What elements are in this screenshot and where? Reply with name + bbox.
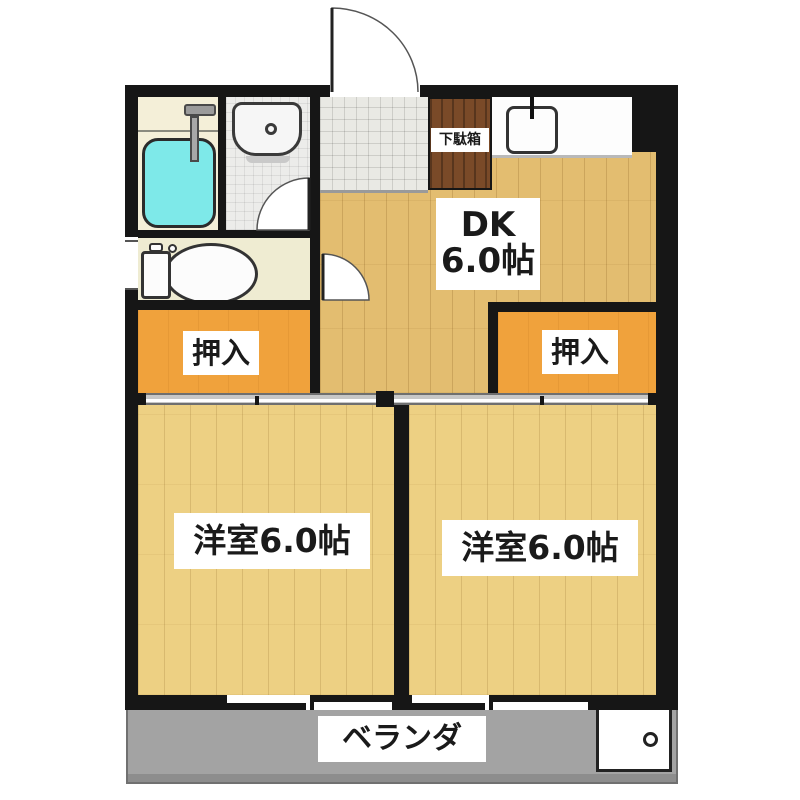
- sliding-band-center-post: [376, 391, 394, 407]
- window-right-tick: [489, 695, 493, 710]
- wall-closet-right-top: [488, 302, 656, 312]
- closet-right-label: 押入: [542, 330, 618, 374]
- wall-bath-washroom: [218, 97, 226, 230]
- window-left-tick: [310, 695, 314, 710]
- window-left-panel-a: [227, 695, 313, 703]
- sliding-band-cap-left: [138, 393, 146, 405]
- sliding-door-tick-left: [255, 396, 259, 405]
- window-right-panel-b: [485, 702, 588, 710]
- drain-circle: [643, 732, 658, 747]
- toilet-tank: [141, 251, 171, 299]
- toilet-flush-button: [168, 244, 177, 253]
- wall-bedroom-divider: [394, 405, 409, 710]
- dk-size: 6.0帖: [441, 244, 535, 280]
- bedroom-left-label: 洋室6.0帖: [174, 513, 370, 569]
- toilet-bowl: [164, 243, 258, 305]
- veranda-label: ベランダ: [318, 716, 486, 762]
- wall-left-lower: [125, 290, 138, 710]
- bathtub: [142, 138, 216, 228]
- sliding-door-track: [138, 399, 656, 402]
- wall-closet-right-side: [488, 302, 498, 393]
- wall-toilet-closet: [125, 300, 320, 310]
- closet-left-label: 押入: [183, 331, 259, 375]
- wall-right: [656, 85, 678, 710]
- wall-left-upper: [125, 85, 138, 237]
- sliding-doors-band: [138, 393, 656, 405]
- wall-bottom: [125, 695, 678, 710]
- shoe-cabinet-label: 下駄箱: [431, 128, 489, 152]
- window-right-panel-a: [412, 695, 492, 703]
- washbasin: [232, 102, 302, 156]
- toilet-cistern-knob: [149, 243, 163, 252]
- wall-spine: [310, 97, 320, 393]
- window-left-panel-b: [306, 702, 392, 710]
- entrance-door-arc: [328, 4, 424, 98]
- entrance-genkan-tiles: [320, 97, 428, 192]
- toilet-door-arc: [321, 252, 371, 302]
- bath-shelf-line: [138, 130, 218, 132]
- toilet-window: [125, 240, 138, 290]
- bath-faucet-head: [184, 104, 216, 116]
- veranda-edge: [128, 774, 676, 782]
- kitchen-faucet: [530, 95, 534, 119]
- sliding-door-tick-right: [540, 396, 544, 405]
- dk-name: DK: [461, 208, 516, 244]
- bath-faucet-stem: [190, 116, 199, 162]
- washbasin-base: [246, 156, 290, 163]
- bedroom-right-label: 洋室6.0帖: [442, 520, 638, 576]
- sliding-band-cap-right: [648, 393, 656, 405]
- genkan-step-edge: [320, 190, 428, 193]
- washing-machine-pan: [596, 706, 672, 772]
- floor-plan: DK 6.0帖 洋室6.0帖 洋室6.0帖 押入 押入 下駄箱 ベランダ: [0, 0, 800, 800]
- dk-label: DK 6.0帖: [436, 198, 540, 290]
- washroom-door-arc: [252, 174, 312, 232]
- washbasin-drain: [265, 123, 277, 135]
- wall-top-left: [125, 85, 330, 97]
